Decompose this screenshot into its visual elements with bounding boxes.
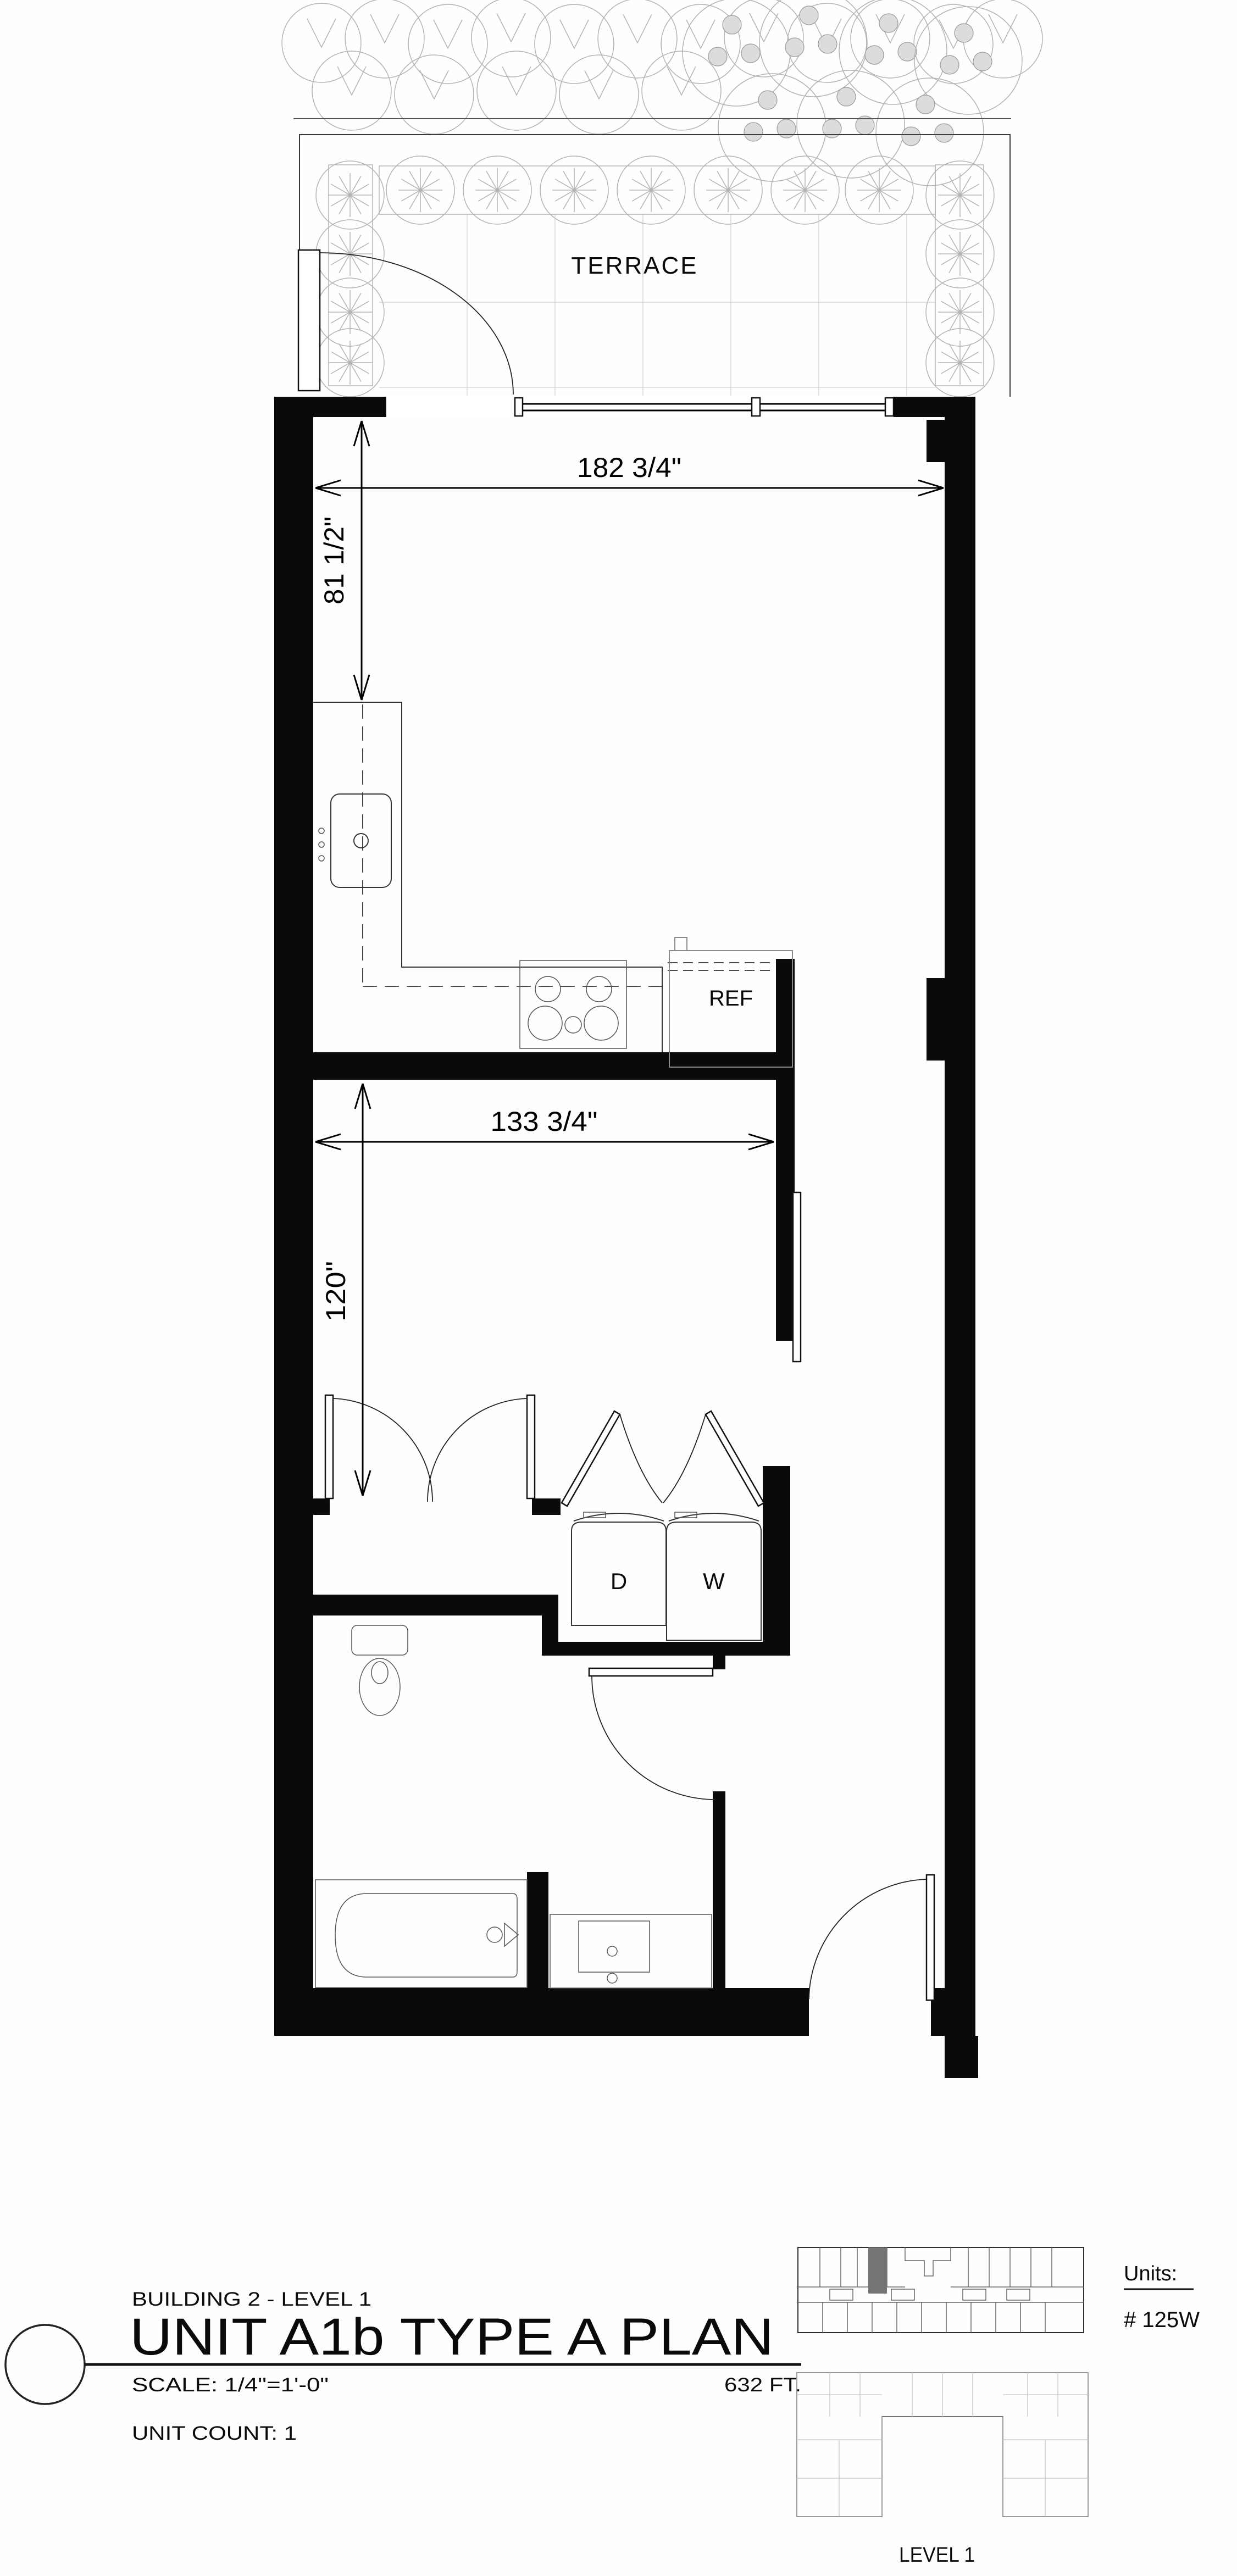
laundry-appliances: D W bbox=[572, 1512, 761, 1640]
title-unit-name: UNIT A1b TYPE A PLAN bbox=[130, 2308, 774, 2366]
terrace-door-swing-arc bbox=[320, 253, 513, 395]
stove-cooktop bbox=[520, 961, 626, 1048]
dryer-label: D bbox=[611, 1568, 627, 1594]
title-bubble-icon bbox=[5, 2325, 85, 2404]
terrace: TERRACE bbox=[298, 135, 1010, 397]
ref-label: REF bbox=[709, 986, 753, 1011]
key-plan-units: Units: # 125W bbox=[1124, 2262, 1200, 2332]
title-block: BUILDING 2 - LEVEL 1 UNIT A1b TYPE A PLA… bbox=[5, 2289, 801, 2444]
title-scale: SCALE: 1/4"=1'-0" bbox=[132, 2374, 329, 2396]
landscaping-hedge-row bbox=[282, 0, 1042, 134]
level-label: LEVEL 1 bbox=[899, 2544, 975, 2567]
terrace-door-leaf bbox=[298, 250, 320, 391]
svg-text:133 3/4": 133 3/4" bbox=[491, 1106, 598, 1137]
dimension-kitchen-depth: 81 1/2" bbox=[319, 421, 369, 700]
key-plan-building bbox=[798, 2247, 1084, 2333]
terrace-label: TERRACE bbox=[571, 252, 698, 279]
entry-door bbox=[809, 1875, 934, 2000]
svg-text:182 3/4": 182 3/4" bbox=[577, 452, 681, 483]
svg-text:120": 120" bbox=[320, 1261, 351, 1322]
terrace-pavers bbox=[379, 214, 935, 396]
title-building: BUILDING 2 - LEVEL 1 bbox=[132, 2289, 371, 2310]
kitchen-counter bbox=[313, 702, 662, 1052]
sink-faucet-icon bbox=[354, 834, 368, 848]
window-jamb bbox=[885, 398, 894, 416]
dimension-living-width: 133 3/4" bbox=[315, 1106, 774, 1150]
unit-number-label: # 125W bbox=[1124, 2308, 1200, 2332]
washer: W bbox=[667, 1522, 761, 1640]
units-label: Units: bbox=[1124, 2262, 1177, 2285]
bathtub bbox=[315, 1880, 527, 1987]
closet-bifold-doors bbox=[562, 1411, 764, 1506]
bedroom-sliding-door bbox=[793, 1192, 801, 1362]
washer-label: W bbox=[703, 1568, 725, 1594]
bathroom-door bbox=[589, 1668, 715, 1800]
toilet bbox=[352, 1625, 408, 1716]
unit-walls bbox=[274, 397, 978, 2078]
svg-text:81 1/2": 81 1/2" bbox=[319, 517, 350, 604]
kitchen: REF bbox=[313, 702, 792, 1067]
tub-drain-icon bbox=[487, 1927, 502, 1942]
title-area: 632 FT. bbox=[724, 2374, 801, 2396]
title-unit-count: UNIT COUNT: 1 bbox=[132, 2423, 297, 2444]
terrace-window bbox=[386, 397, 894, 417]
tub-faucet-icon bbox=[504, 1923, 518, 1946]
dimension-overall-width: 182 3/4" bbox=[315, 452, 944, 496]
kitchen-sink bbox=[331, 794, 391, 887]
window-jamb bbox=[515, 398, 523, 416]
dryer: D bbox=[572, 1522, 666, 1625]
window-mullion bbox=[752, 398, 760, 416]
vanity-sink bbox=[550, 1914, 712, 1988]
hall-double-doors bbox=[325, 1395, 535, 1502]
refrigerator: REF bbox=[669, 937, 792, 1067]
floorplan-sheet: TERRACE bbox=[0, 0, 1237, 2576]
keyplan-highlighted-unit bbox=[868, 2247, 887, 2294]
key-plan-courtyard bbox=[797, 2373, 1088, 2517]
